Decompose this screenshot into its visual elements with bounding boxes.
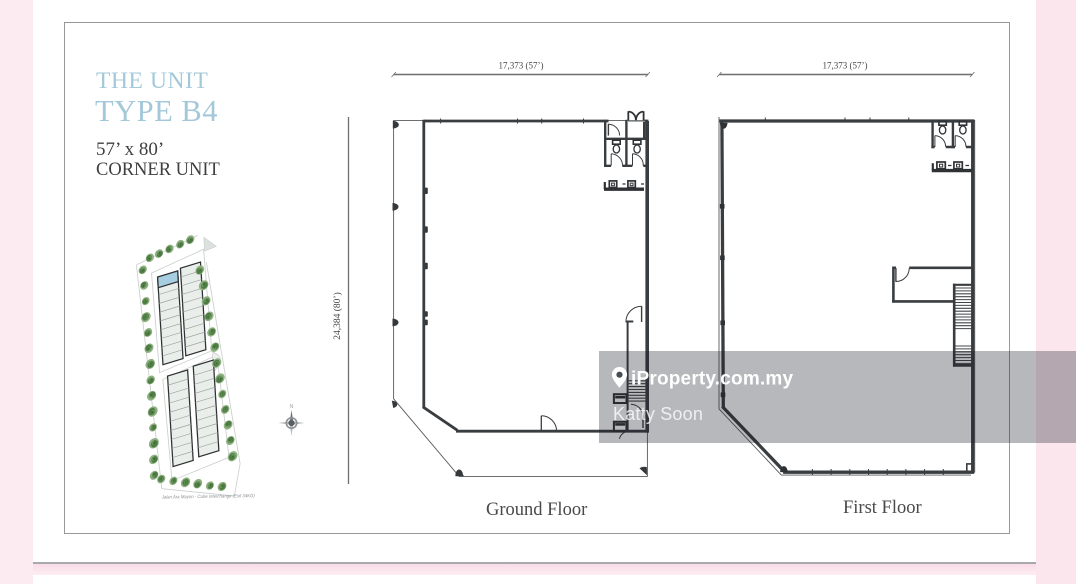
svg-text:Jalan Ara Mayon - Cube Interch: Jalan Ara Mayon - Cube Interchange (Exit… xyxy=(161,493,256,500)
svg-text:17,373 (57’): 17,373 (57’) xyxy=(499,61,544,71)
svg-text:N: N xyxy=(290,404,294,410)
svg-text:24,384 (80’): 24,384 (80’) xyxy=(332,292,343,340)
svg-text:17,373 (57’): 17,373 (57’) xyxy=(823,61,868,71)
